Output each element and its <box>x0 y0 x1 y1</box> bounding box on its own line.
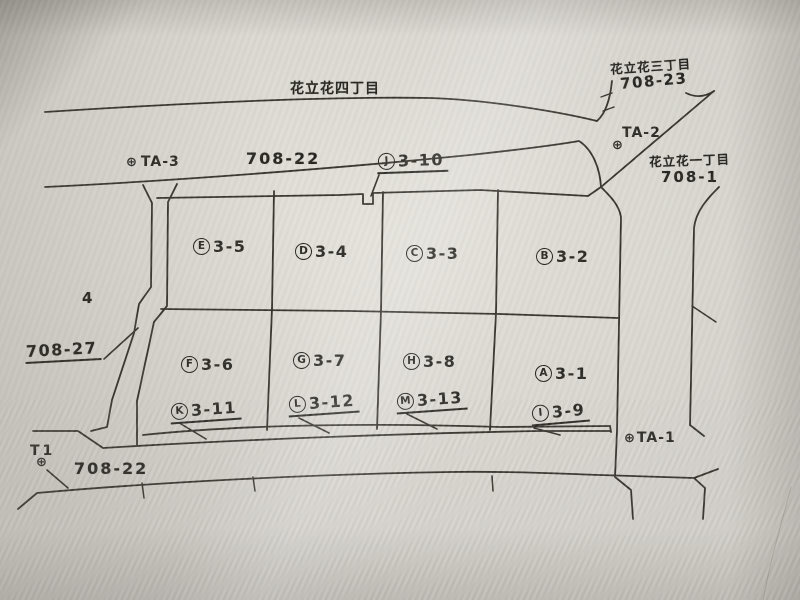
parcel-letter-badge: G <box>293 352 310 369</box>
benchmark-ta1: ⊕ TA-1 <box>624 430 676 446</box>
parcel-number: 3-2 <box>556 247 589 266</box>
parcel-letter-badge: M <box>396 392 414 410</box>
parcel-label-g: G 3-7 <box>293 351 346 370</box>
circled-plus-icon: ⊕ <box>36 455 48 470</box>
lot-label-north-road: 708-22 <box>246 149 320 168</box>
parcel-letter-badge: J <box>378 153 396 171</box>
parcel-label-j: J 3-10 <box>377 150 449 174</box>
parcel-number: 3-12 <box>308 391 355 413</box>
benchmark-ta2: TA-2 ⊕ <box>612 125 661 153</box>
parcel-number: 3-11 <box>190 398 237 420</box>
south-strip-end-cap <box>610 426 611 432</box>
parcel-label-e: E 3-5 <box>193 237 246 256</box>
east-road-east-edge <box>690 187 719 436</box>
parcel-label-c: C 3-3 <box>406 244 459 263</box>
column-divider <box>381 192 383 311</box>
parcel-label-b: B 3-2 <box>536 247 589 266</box>
lot-label-south-road: 708-22 <box>74 459 148 478</box>
south-road-northeast-spur <box>694 469 718 478</box>
parcel-letter-badge: I <box>531 404 549 422</box>
district-label-north: 花立花四丁目 <box>290 78 380 98</box>
benchmark-ta3: ⊕ TA-3 <box>126 154 180 170</box>
leader-benchmark-t1 <box>47 470 68 488</box>
parcel-letter-badge: D <box>295 243 312 260</box>
column-divider <box>272 191 274 309</box>
benchmark-ta1-label: TA-1 <box>637 430 676 446</box>
circled-plus-icon: ⊕ <box>624 431 636 446</box>
benchmark-ta3-label: TA-3 <box>141 154 180 170</box>
benchmark-ta2-label: TA-2 <box>622 125 661 141</box>
lot-label-west: 708-27 <box>24 338 101 364</box>
south-road-corner-chamfer <box>694 478 705 519</box>
parcel-number: 3-1 <box>555 364 588 383</box>
column-divider <box>267 309 272 430</box>
parcel-number: 3-13 <box>416 388 463 410</box>
row-divider <box>161 309 618 318</box>
parcel-number: 3-9 <box>551 400 586 422</box>
paper-crease <box>763 487 791 600</box>
parcel-number: 3-8 <box>423 352 456 371</box>
circled-plus-icon: ⊕ <box>612 138 624 153</box>
parcel-number: 3-3 <box>426 244 459 263</box>
parcel-letter-badge: A <box>535 365 552 382</box>
column-divider <box>496 190 498 313</box>
parcel-number: 3-4 <box>315 242 348 261</box>
north-road-upper-edge <box>45 98 597 121</box>
parcel-letter-badge: K <box>170 402 188 420</box>
parcel-letter-badge: L <box>288 395 306 413</box>
parcel-label-f: F 3-6 <box>181 355 234 374</box>
circled-plus-icon: ⊕ <box>126 155 138 170</box>
parcel-letter-badge: H <box>403 353 420 370</box>
lot-frontage-tick <box>492 476 493 491</box>
parcel-label-h: H 3-8 <box>403 352 456 371</box>
parcel-letter-badge: B <box>536 248 553 265</box>
leader-lot-708-27 <box>104 328 138 359</box>
parcel-label-d: D 3-4 <box>295 242 348 261</box>
benchmark-t1: T1 ⊕ <box>30 443 55 470</box>
lot-label-east: 708-1 <box>661 168 719 186</box>
scanned-survey-map: 花立花四丁目 708-22 花立花三丁目 708-23 花立花一丁目 708-1… <box>0 0 800 600</box>
leader-parcel-m <box>407 414 437 429</box>
parcel-number: 3-7 <box>313 351 346 370</box>
map-line-work <box>0 0 800 600</box>
parcel-letter-badge: F <box>181 356 198 373</box>
south-strip-lower-edge <box>103 431 610 448</box>
column-divider <box>377 311 381 429</box>
block-number-west: 4 <box>82 289 94 307</box>
parcel-label-a: A 3-1 <box>535 364 588 383</box>
east-road-branch-tick <box>692 306 716 322</box>
parcel-number: 3-10 <box>398 150 445 171</box>
west-strip-left-edge <box>91 185 152 431</box>
north-road-end-curl <box>597 81 612 121</box>
parcel-number: 3-6 <box>201 355 234 374</box>
parcel-letter-badge: C <box>406 245 423 262</box>
parcel-number: 3-5 <box>213 237 246 256</box>
block-top-boundary <box>157 187 601 204</box>
parcel-letter-badge: E <box>193 238 210 255</box>
column-divider <box>490 313 496 430</box>
